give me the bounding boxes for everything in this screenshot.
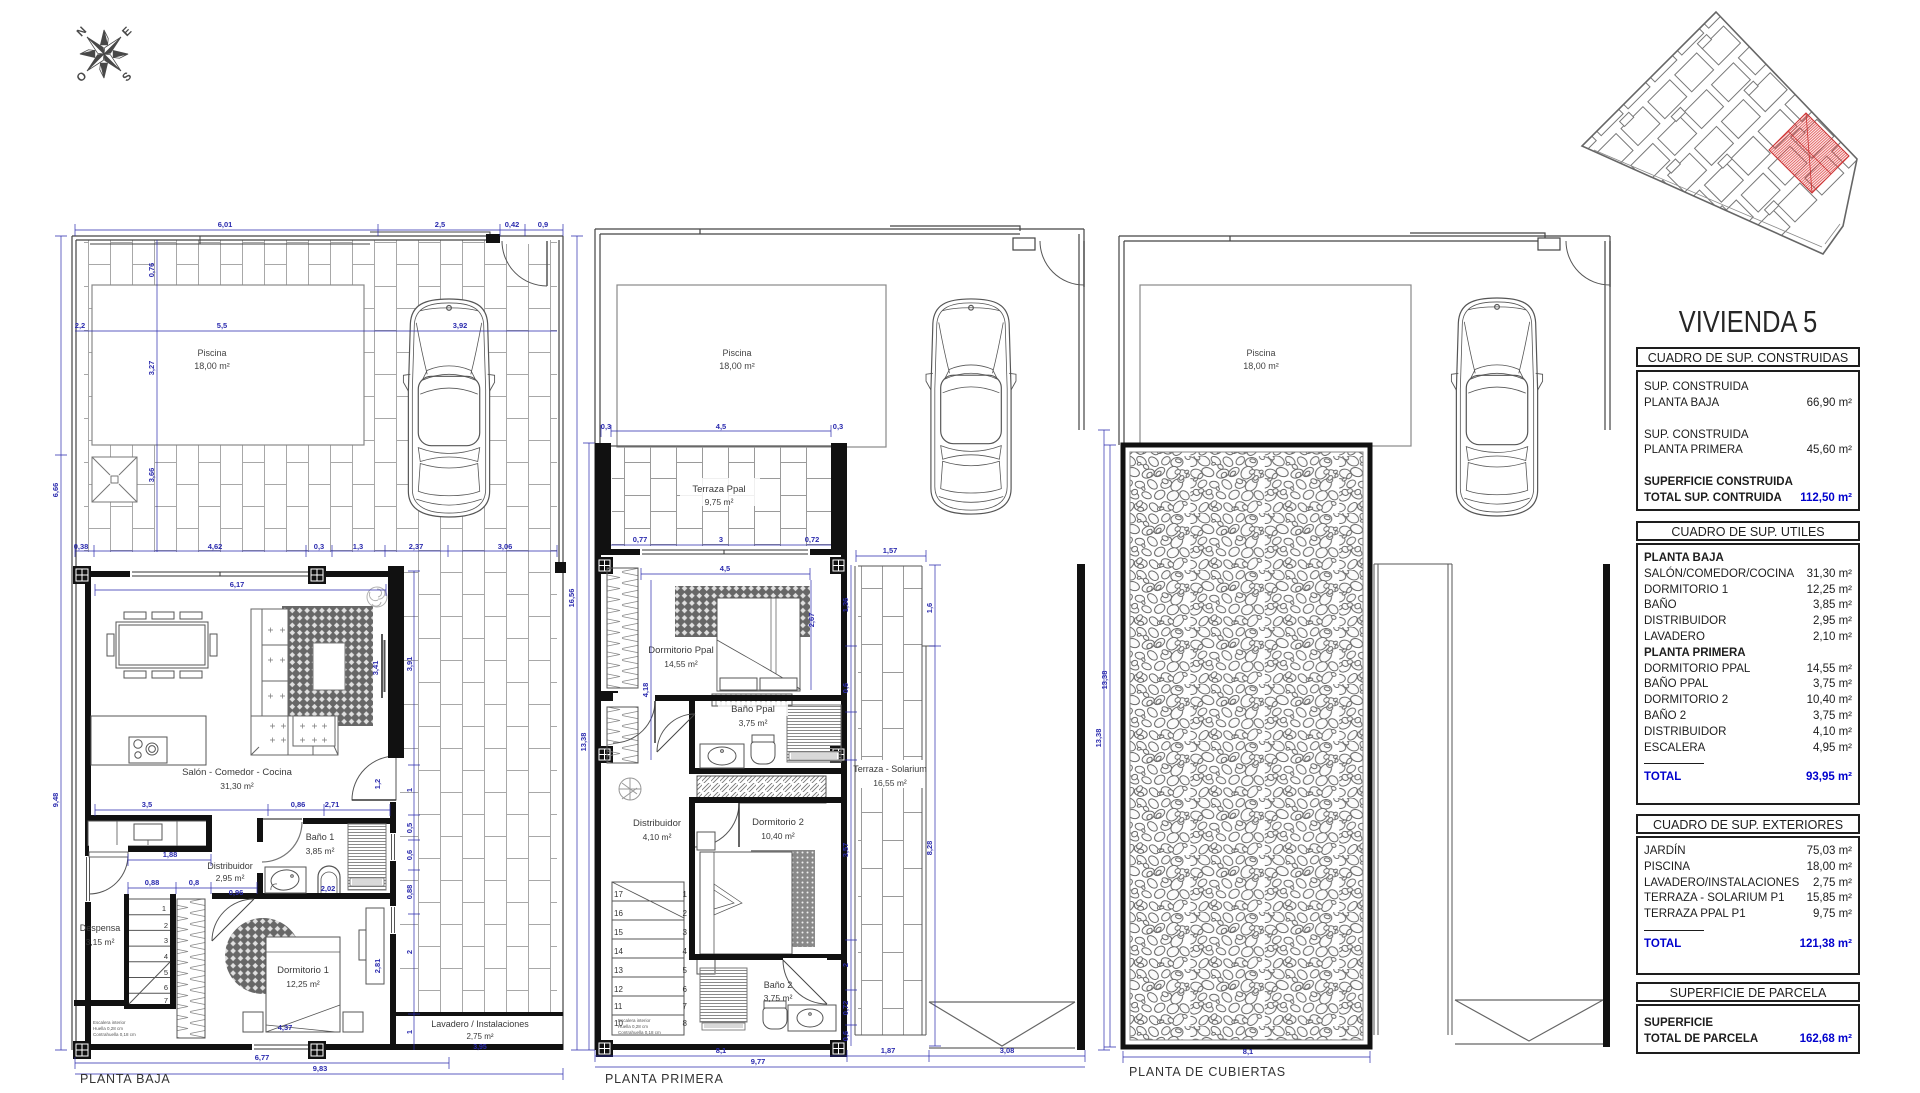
svg-text:3,15 m²: 3,15 m² bbox=[86, 937, 115, 947]
svg-text:5,5: 5,5 bbox=[217, 321, 227, 330]
svg-text:13,38: 13,38 bbox=[579, 733, 588, 752]
svg-text:3,08: 3,08 bbox=[1000, 1046, 1015, 1055]
svg-text:18,00 m²: 18,00 m² bbox=[1243, 361, 1279, 371]
svg-text:3: 3 bbox=[719, 535, 723, 544]
svg-text:13,38: 13,38 bbox=[1094, 729, 1103, 748]
svg-text:Escalera interior: Escalera interior bbox=[93, 1020, 126, 1025]
svg-text:Contrahuella 0,18 cm: Contrahuella 0,18 cm bbox=[93, 1032, 136, 1037]
svg-text:3,95: 3,95 bbox=[473, 1044, 487, 1051]
svg-text:0,88: 0,88 bbox=[145, 878, 160, 887]
svg-text:16,56: 16,56 bbox=[567, 589, 576, 608]
svg-text:2,95 m²: 2,95 m² bbox=[216, 873, 245, 883]
svg-text:3,75 m²: 3,75 m² bbox=[764, 993, 793, 1003]
svg-text:3,27: 3,27 bbox=[147, 361, 156, 376]
svg-text:PLANTA BAJA: PLANTA BAJA bbox=[80, 1072, 171, 1086]
svg-text:18,00 m²: 18,00 m² bbox=[719, 361, 755, 371]
svg-text:1: 1 bbox=[162, 904, 166, 913]
svg-text:0,3: 0,3 bbox=[314, 542, 324, 551]
svg-text:6,77: 6,77 bbox=[255, 1053, 270, 1062]
svg-text:31,30 m²: 31,30 m² bbox=[220, 781, 254, 791]
svg-text:13,38: 13,38 bbox=[1100, 671, 1109, 690]
svg-text:4: 4 bbox=[683, 947, 688, 956]
svg-text:Despensa: Despensa bbox=[80, 923, 121, 933]
svg-text:1: 1 bbox=[683, 890, 688, 899]
svg-text:1,36: 1,36 bbox=[841, 598, 850, 613]
svg-text:4,10 m²: 4,10 m² bbox=[643, 832, 672, 842]
svg-text:5: 5 bbox=[683, 966, 688, 975]
svg-text:13: 13 bbox=[614, 966, 623, 975]
svg-text:2,02: 2,02 bbox=[321, 884, 336, 893]
svg-text:Lavadero / Instalaciones: Lavadero / Instalaciones bbox=[431, 1019, 529, 1029]
svg-text:E: E bbox=[120, 25, 134, 39]
svg-text:Piscina: Piscina bbox=[197, 348, 226, 358]
svg-text:7: 7 bbox=[683, 1002, 688, 1011]
svg-text:4,37: 4,37 bbox=[278, 1023, 293, 1032]
svg-text:0,86: 0,86 bbox=[291, 800, 306, 809]
svg-text:1,2: 1,2 bbox=[373, 779, 382, 789]
svg-text:Terraza - Solarium: Terraza - Solarium bbox=[853, 764, 927, 774]
svg-text:4,62: 4,62 bbox=[208, 542, 223, 551]
svg-text:0,72: 0,72 bbox=[805, 535, 820, 544]
svg-text:2: 2 bbox=[683, 909, 688, 918]
svg-text:O: O bbox=[75, 70, 90, 85]
svg-text:1,88: 1,88 bbox=[163, 850, 178, 859]
svg-text:10,40 m²: 10,40 m² bbox=[761, 831, 795, 841]
svg-text:Terraza Ppal: Terraza Ppal bbox=[692, 484, 745, 495]
svg-text:7: 7 bbox=[164, 996, 168, 1005]
svg-text:3,06: 3,06 bbox=[498, 542, 513, 551]
svg-text:8,28: 8,28 bbox=[925, 841, 934, 856]
svg-text:Dormitorio Ppal: Dormitorio Ppal bbox=[648, 645, 713, 656]
svg-text:3,66: 3,66 bbox=[147, 468, 156, 483]
svg-text:4: 4 bbox=[164, 952, 168, 961]
svg-text:14: 14 bbox=[614, 947, 623, 956]
svg-text:8: 8 bbox=[683, 1019, 688, 1028]
svg-text:2,2: 2,2 bbox=[75, 321, 85, 330]
svg-text:3: 3 bbox=[164, 936, 168, 945]
svg-text:2,75 m²: 2,75 m² bbox=[466, 1032, 493, 1041]
svg-text:Huella 0,28 cm: Huella 0,28 cm bbox=[93, 1026, 123, 1031]
svg-text:1: 1 bbox=[405, 788, 414, 792]
svg-text:Escalera interior: Escalera interior bbox=[618, 1018, 651, 1023]
svg-text:Baño Ppal: Baño Ppal bbox=[731, 704, 775, 715]
svg-text:4,5: 4,5 bbox=[720, 564, 730, 573]
svg-text:2,71: 2,71 bbox=[325, 800, 340, 809]
svg-text:1,87: 1,87 bbox=[881, 1046, 896, 1055]
svg-text:0,88: 0,88 bbox=[405, 885, 414, 900]
svg-text:1,57: 1,57 bbox=[883, 546, 898, 555]
svg-text:6: 6 bbox=[164, 983, 168, 992]
svg-text:2: 2 bbox=[841, 963, 850, 967]
svg-text:S: S bbox=[120, 70, 134, 84]
svg-text:0,5: 0,5 bbox=[405, 823, 414, 833]
svg-text:12: 12 bbox=[614, 985, 623, 994]
svg-text:0,3: 0,3 bbox=[833, 422, 843, 431]
svg-text:2,37: 2,37 bbox=[409, 542, 424, 551]
svg-text:14,55 m²: 14,55 m² bbox=[664, 659, 698, 669]
svg-text:0,6: 0,6 bbox=[405, 850, 414, 860]
svg-text:3,57: 3,57 bbox=[841, 843, 850, 858]
svg-text:5: 5 bbox=[164, 968, 168, 977]
svg-text:Piscina: Piscina bbox=[1246, 348, 1275, 358]
svg-text:8,1: 8,1 bbox=[1243, 1047, 1253, 1056]
svg-text:0,38: 0,38 bbox=[74, 542, 89, 551]
svg-text:2: 2 bbox=[405, 950, 414, 954]
svg-text:Dormitorio 2: Dormitorio 2 bbox=[752, 817, 804, 828]
svg-text:3: 3 bbox=[683, 928, 688, 937]
svg-text:6,17: 6,17 bbox=[230, 580, 245, 589]
svg-text:Contrahuella 0,18 cm: Contrahuella 0,18 cm bbox=[618, 1030, 661, 1035]
svg-text:Salón - Comedor - Cocina: Salón - Comedor - Cocina bbox=[182, 767, 293, 778]
svg-text:11: 11 bbox=[614, 1002, 623, 1011]
svg-text:4,18: 4,18 bbox=[641, 683, 650, 698]
svg-text:15: 15 bbox=[614, 928, 623, 937]
svg-text:0,42: 0,42 bbox=[505, 220, 520, 229]
svg-text:17: 17 bbox=[614, 890, 623, 899]
svg-text:Baño 2: Baño 2 bbox=[764, 980, 793, 990]
svg-text:8,1: 8,1 bbox=[716, 1046, 726, 1055]
svg-text:18,00 m²: 18,00 m² bbox=[194, 361, 230, 371]
svg-text:0,72: 0,72 bbox=[841, 1001, 850, 1016]
svg-text:0,96: 0,96 bbox=[229, 888, 244, 897]
svg-text:9,83: 9,83 bbox=[313, 1064, 328, 1073]
svg-text:Piscina: Piscina bbox=[722, 348, 751, 358]
svg-text:6,66: 6,66 bbox=[51, 483, 60, 498]
svg-text:3,92: 3,92 bbox=[453, 321, 468, 330]
svg-text:2,5: 2,5 bbox=[435, 220, 445, 229]
svg-text:Dormitorio 1: Dormitorio 1 bbox=[277, 965, 329, 976]
svg-text:Huella 0,28 cm: Huella 0,28 cm bbox=[618, 1024, 648, 1029]
svg-text:0,9: 0,9 bbox=[538, 220, 548, 229]
svg-text:Baño 1: Baño 1 bbox=[306, 832, 335, 842]
svg-text:9,77: 9,77 bbox=[751, 1057, 766, 1066]
svg-text:4,5: 4,5 bbox=[716, 422, 726, 431]
svg-text:2,67: 2,67 bbox=[807, 613, 816, 628]
svg-text:2,81: 2,81 bbox=[373, 959, 382, 974]
svg-text:2: 2 bbox=[164, 921, 168, 930]
svg-text:0,6: 0,6 bbox=[841, 1031, 850, 1041]
svg-text:3,5: 3,5 bbox=[142, 800, 152, 809]
svg-text:16: 16 bbox=[614, 909, 623, 918]
svg-text:0,76: 0,76 bbox=[147, 263, 156, 278]
svg-text:3,91: 3,91 bbox=[405, 657, 414, 672]
svg-text:0,8: 0,8 bbox=[189, 878, 199, 887]
svg-text:6,01: 6,01 bbox=[218, 220, 233, 229]
svg-text:0,77: 0,77 bbox=[633, 535, 648, 544]
svg-text:0,6: 0,6 bbox=[841, 683, 850, 693]
svg-text:0,3: 0,3 bbox=[601, 422, 611, 431]
svg-text:1: 1 bbox=[405, 1030, 414, 1034]
svg-text:3,85 m²: 3,85 m² bbox=[306, 846, 335, 856]
svg-text:6: 6 bbox=[683, 985, 688, 994]
svg-text:12,25 m²: 12,25 m² bbox=[286, 979, 320, 989]
svg-text:9,48: 9,48 bbox=[51, 793, 60, 808]
svg-text:Distribuidor: Distribuidor bbox=[633, 818, 681, 829]
svg-text:3,41: 3,41 bbox=[371, 661, 380, 676]
svg-text:9,75 m²: 9,75 m² bbox=[705, 497, 734, 507]
svg-text:16,55 m²: 16,55 m² bbox=[873, 778, 907, 788]
svg-text:1,6: 1,6 bbox=[925, 603, 934, 613]
svg-text:1,3: 1,3 bbox=[353, 542, 363, 551]
svg-text:Distribuidor: Distribuidor bbox=[207, 861, 253, 871]
svg-text:PLANTA DE CUBIERTAS: PLANTA DE CUBIERTAS bbox=[1129, 1065, 1286, 1079]
svg-text:PLANTA PRIMERA: PLANTA PRIMERA bbox=[605, 1072, 724, 1086]
svg-text:3,75 m²: 3,75 m² bbox=[739, 718, 768, 728]
